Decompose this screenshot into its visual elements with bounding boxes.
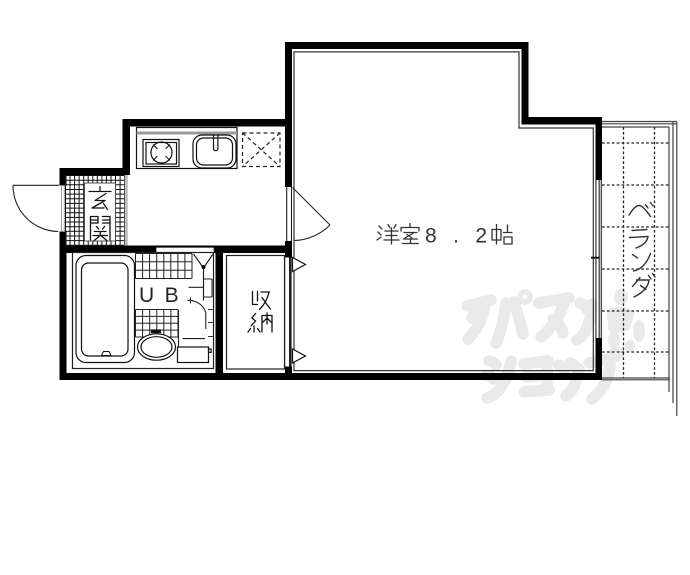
svg-text:UB: UB <box>139 284 189 307</box>
svg-text:8.2: 8.2 <box>425 225 487 248</box>
